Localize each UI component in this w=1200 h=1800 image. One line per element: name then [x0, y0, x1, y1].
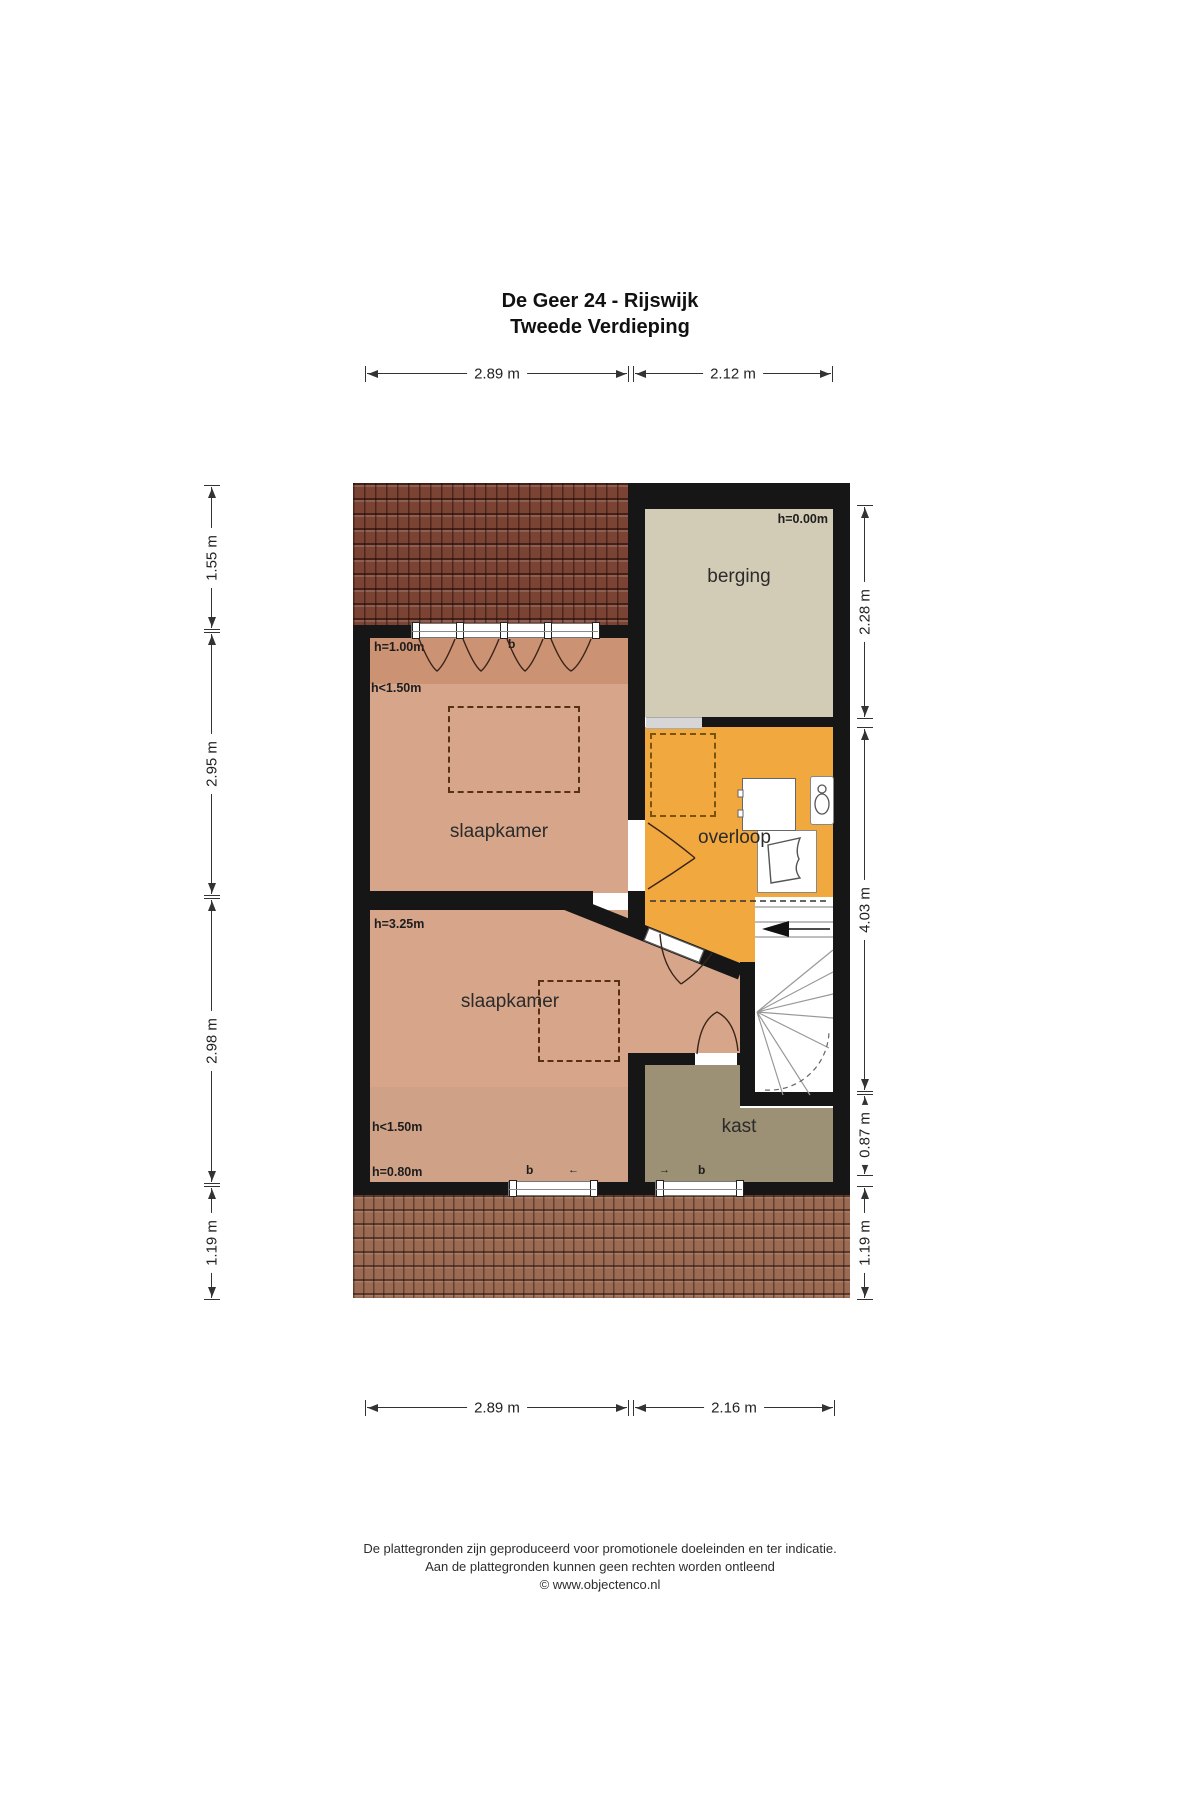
wall-berging-left — [628, 483, 645, 727]
dim-arrow-up-icon — [208, 1189, 216, 1199]
dim-arrow-down-icon — [861, 1079, 869, 1089]
dim-arrow-down-icon — [208, 1287, 216, 1297]
wall-stairs-left — [740, 962, 755, 1102]
label-kast: kast — [645, 1116, 833, 1138]
wall-right-outer — [833, 483, 850, 1195]
dim-arrow-down-icon — [208, 883, 216, 893]
dim-arrow-up-icon — [861, 508, 869, 518]
label-sk2-h325: h=3.25m — [374, 917, 424, 931]
dim-arrow-right-icon — [820, 370, 830, 378]
plan-symbols-overlay — [0, 0, 1200, 1800]
window-arrow-left-icon: ← — [568, 1164, 579, 1176]
dim-right-2: 4.03 m — [857, 727, 873, 1092]
roof-tiles-bottom — [353, 1195, 850, 1298]
label-sk1-h100: h=1.00m — [374, 640, 424, 654]
dim-arrow-left-icon — [368, 370, 378, 378]
dim-left-2-label: 2.95 m — [204, 734, 221, 794]
dim-top-1: 2.89 m — [365, 366, 629, 382]
dim-bottom-2-label: 2.16 m — [704, 1400, 764, 1417]
label-sk2-h150: h<1.50m — [372, 1120, 422, 1134]
dim-top-2: 2.12 m — [633, 366, 833, 382]
window-post — [656, 1180, 664, 1197]
dim-arrow-left-icon — [636, 370, 646, 378]
dim-arrow-right-icon — [822, 1404, 832, 1412]
dim-right-1-label: 2.28 m — [857, 582, 874, 642]
label-berging-height: h=0.00m — [645, 512, 828, 526]
title-floor: Tweede Verdieping — [0, 314, 1200, 340]
dim-right-4-label: 1.19 m — [857, 1213, 874, 1273]
label-window-b-top: b — [508, 637, 515, 651]
footer-line-1: De plattegronden zijn geproduceerd voor … — [0, 1540, 1200, 1558]
dim-right-3-label: 0.87 m — [857, 1105, 874, 1165]
toilet — [810, 776, 834, 825]
window-arrow-right-icon: → — [659, 1164, 670, 1176]
skylight-outline-overloop — [650, 733, 716, 817]
dim-arrow-up-icon — [861, 1189, 869, 1199]
dim-right-1: 2.28 m — [857, 505, 873, 719]
window-post — [412, 622, 420, 639]
roof-tiles-top — [353, 483, 630, 625]
dim-right-4: 1.19 m — [857, 1186, 873, 1300]
page-title: De Geer 24 - Rijswijk Tweede Verdieping — [0, 288, 1200, 340]
wall-middle-upper — [628, 727, 645, 822]
wall-stairs-bottom — [740, 1092, 833, 1106]
dim-arrow-up-icon — [208, 901, 216, 911]
dim-right-2-label: 4.03 m — [857, 880, 874, 940]
wall-kast-left — [628, 1053, 645, 1182]
room-berging — [645, 508, 833, 717]
dim-top-2-label: 2.12 m — [703, 366, 763, 383]
label-sk2-h080: h=0.80m — [372, 1165, 422, 1179]
window-bottom-kast — [655, 1181, 743, 1196]
window-top-group — [411, 623, 599, 638]
dim-arrow-left-icon — [636, 1404, 646, 1412]
washing-machine — [742, 778, 796, 831]
dim-arrow-down-icon — [861, 1287, 869, 1297]
dim-left-2: 2.95 m — [204, 632, 220, 896]
staircase-area — [755, 897, 833, 1095]
footer-line-2: Aan de plattegronden kunnen geen rechten… — [0, 1558, 1200, 1576]
label-window-b-bottom-right: b — [698, 1163, 705, 1177]
window-post — [509, 1180, 517, 1197]
dim-bottom-1: 2.89 m — [365, 1400, 629, 1416]
dim-left-3-label: 2.98 m — [204, 1011, 221, 1071]
window-post — [500, 622, 508, 639]
wall-left-outer — [353, 625, 370, 1195]
dim-bottom-1-label: 2.89 m — [467, 1400, 527, 1417]
passage-berging-overloop — [646, 717, 702, 729]
door-slaapkamer1-overloop — [628, 820, 645, 891]
dim-arrow-down-icon — [208, 1171, 216, 1181]
floor-plan-page: De Geer 24 - Rijswijk Tweede Verdieping — [0, 0, 1200, 1800]
window-bottom-slaapkamer — [508, 1181, 597, 1196]
dim-arrow-right-icon — [616, 370, 626, 378]
label-sk1-h150: h<1.50m — [371, 681, 421, 695]
dim-arrow-down-icon — [208, 617, 216, 627]
window-post — [736, 1180, 744, 1197]
label-berging: berging — [645, 566, 833, 588]
label-slaapkamer-2: slaapkamer — [380, 991, 640, 1013]
dim-bottom-2: 2.16 m — [633, 1400, 835, 1416]
wall-bottom-outer — [353, 1182, 850, 1195]
window-post — [544, 622, 552, 639]
dim-arrow-up-icon — [861, 730, 869, 740]
dim-arrow-down-icon — [861, 706, 869, 716]
footer-copyright: © www.objectenco.nl — [0, 1576, 1200, 1594]
dim-left-1-label: 1.55 m — [204, 528, 221, 588]
label-overloop: overloop — [652, 827, 817, 849]
wall-berging-top — [628, 483, 850, 509]
dim-left-4-label: 1.19 m — [204, 1213, 221, 1273]
dim-left-1: 1.55 m — [204, 485, 220, 630]
dim-arrow-left-icon — [368, 1404, 378, 1412]
label-slaapkamer-1: slaapkamer — [370, 821, 628, 843]
label-window-b-bottom-left: b — [526, 1163, 533, 1177]
window-post — [590, 1180, 598, 1197]
dim-left-3: 2.98 m — [204, 898, 220, 1184]
bed-outline-1 — [448, 706, 580, 793]
dim-arrow-up-icon — [208, 488, 216, 498]
door-kast — [695, 1053, 737, 1065]
dim-top-1-label: 2.89 m — [467, 366, 527, 383]
wall-berging-bottom — [700, 717, 833, 727]
footer-disclaimer: De plattegronden zijn geproduceerd voor … — [0, 1540, 1200, 1594]
window-post — [456, 622, 464, 639]
title-address: De Geer 24 - Rijswijk — [0, 288, 1200, 314]
dim-right-3: 0.87 m — [857, 1094, 873, 1176]
dim-arrow-up-icon — [208, 635, 216, 645]
dim-left-4: 1.19 m — [204, 1186, 220, 1300]
window-post — [592, 622, 600, 639]
dim-arrow-right-icon — [616, 1404, 626, 1412]
